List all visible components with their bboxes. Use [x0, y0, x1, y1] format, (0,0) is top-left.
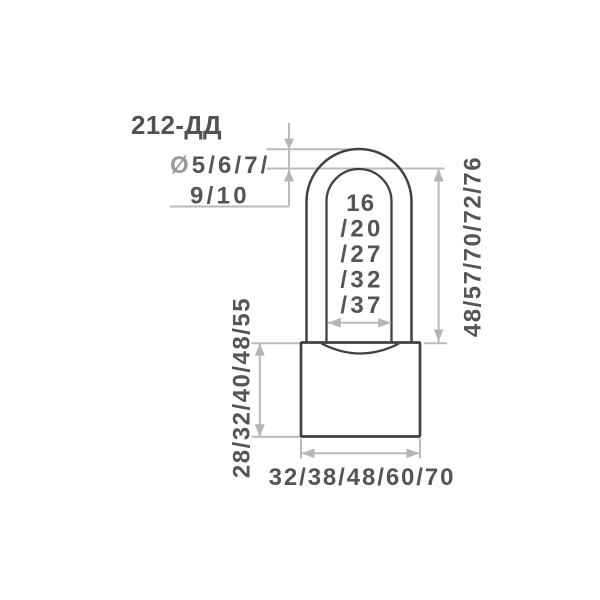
svg-text:/27: /27	[340, 241, 383, 268]
svg-text:28/32/40/48/55: 28/32/40/48/55	[228, 297, 255, 478]
svg-text:212-ДД: 212-ДД	[131, 110, 222, 140]
svg-text:9/10: 9/10	[190, 182, 250, 209]
svg-text:16: 16	[346, 190, 375, 217]
svg-text:/20: /20	[340, 215, 383, 242]
svg-text:Ø5/6/7/: Ø5/6/7/	[170, 152, 270, 179]
svg-text:/37: /37	[340, 292, 383, 319]
svg-text:32/38/48/60/70: 32/38/48/60/70	[269, 464, 456, 491]
svg-text:/32: /32	[340, 266, 383, 293]
svg-text:48/57/70/72/76: 48/57/70/72/76	[460, 156, 487, 337]
